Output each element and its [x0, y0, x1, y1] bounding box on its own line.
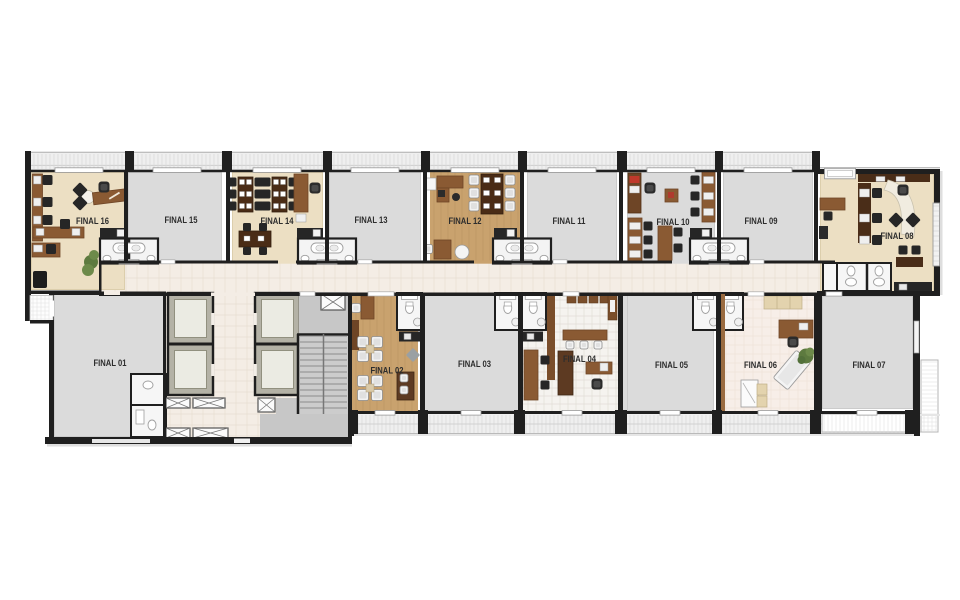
svg-text:FINAL 04: FINAL 04 — [563, 354, 597, 365]
svg-text:FINAL 10: FINAL 10 — [657, 217, 690, 228]
svg-text:FINAL 02: FINAL 02 — [371, 366, 404, 377]
svg-text:FINAL 12: FINAL 12 — [449, 216, 482, 227]
svg-text:FINAL 09: FINAL 09 — [745, 216, 778, 227]
svg-text:FINAL 01: FINAL 01 — [94, 358, 128, 369]
svg-text:FINAL 13: FINAL 13 — [355, 215, 388, 226]
svg-text:FINAL 07: FINAL 07 — [853, 360, 886, 371]
svg-text:FINAL 08: FINAL 08 — [881, 231, 914, 242]
svg-text:FINAL 06: FINAL 06 — [744, 360, 777, 371]
svg-text:FINAL 03: FINAL 03 — [458, 359, 491, 370]
svg-text:FINAL 05: FINAL 05 — [655, 360, 689, 371]
svg-text:FINAL 15: FINAL 15 — [165, 215, 199, 226]
svg-text:FINAL 14: FINAL 14 — [261, 216, 295, 227]
svg-text:FINAL 16: FINAL 16 — [76, 216, 109, 227]
svg-text:FINAL 11: FINAL 11 — [553, 216, 587, 227]
